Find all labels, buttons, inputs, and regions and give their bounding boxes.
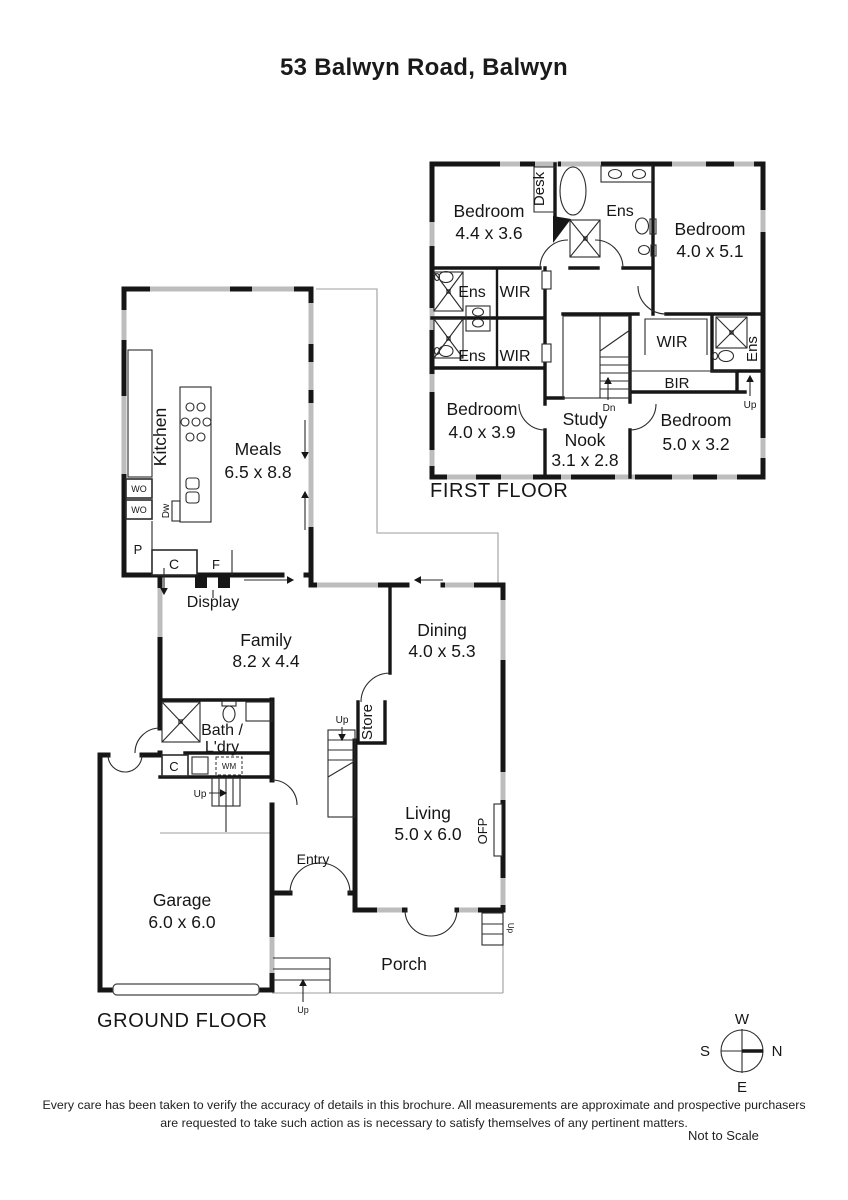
room-dims-bedroom-br: 5.0 x 3.2 [662,434,729,454]
dn-label: Dn [603,403,616,414]
room-label-living: Living [405,803,451,823]
room-dims-bedroom-tr: 4.0 x 5.1 [676,241,743,261]
room-label-dining: Dining [417,620,467,640]
room-label-bedroom-bl: Bedroom [446,399,517,419]
bir-label: BIR [664,375,689,392]
shower-icon [570,220,600,257]
north-label: N [772,1043,783,1060]
dishwasher-icon [172,501,180,521]
toilet-icon [713,351,734,362]
toilet-icon [222,701,236,722]
island-bench-icon [180,387,211,522]
first-floor-plan: Bedroom 4.4 x 3.6 Bedroom 4.0 x 5.1 Bedr… [430,164,763,502]
store-label: Store [359,704,376,740]
stairs-icon [563,316,630,398]
wir-label: WIR [499,348,530,365]
west-label: W [735,1011,750,1028]
disclaimer-line-1: Every care has been taken to verify the … [0,1096,848,1114]
room-label-family: Family [240,630,292,650]
room-dims-garage: 6.0 x 6.0 [148,912,215,932]
room-label-bedroom-tr: Bedroom [674,219,745,239]
door-panel [542,344,551,362]
east-label: E [737,1079,747,1096]
room-dims-meals: 6.5 x 8.8 [224,462,291,482]
angled-wall [553,216,571,243]
room-dims-bedroom-bl: 4.0 x 3.9 [448,422,515,442]
room-label-meals: Meals [235,439,282,459]
room-label-study-nook-2: Nook [565,430,606,450]
wir-label: WIR [499,284,530,301]
desk-label: Desk [531,171,548,206]
laundry-bench [246,702,272,721]
ens-label: Ens [458,348,486,365]
vanity-icon [601,166,652,182]
room-label-bath-2: L'dry [205,739,239,756]
washing-machine-label: WM [222,762,237,771]
stairs-icon [212,778,240,832]
up-label: Up [506,923,515,934]
fireplace-icon [494,804,502,856]
not-to-scale-note: Not to Scale [688,1128,798,1143]
first-floor-title: FIRST FLOOR [430,480,568,502]
shower-icon [716,317,747,348]
laundry-trough [192,757,208,774]
door-panel [542,271,551,289]
porch-outline [272,913,503,993]
ofp-label: OFP [475,818,490,845]
room-label-bath: Bath / [201,722,243,739]
slider-arrows [164,420,443,594]
room-label-kitchen: Kitchen [150,408,170,466]
bathtub-icon [560,167,586,215]
room-label-study-nook: Study [563,409,608,429]
shower-icon [162,702,200,742]
room-dims-dining: 4.0 x 5.3 [408,641,475,661]
ens-label: Ens [744,336,761,362]
room-dims-family: 8.2 x 4.4 [232,651,299,671]
up-label: Up [194,789,207,800]
wir-label: WIR [656,334,687,351]
room-label-bedroom-br: Bedroom [660,410,731,430]
room-label-bedroom-tl: Bedroom [453,201,524,221]
compass: W S N E [700,1011,782,1096]
pantry-label: P [134,542,143,557]
display-label: Display [187,594,239,611]
room-dims-bedroom-tl: 4.4 x 3.6 [455,223,522,243]
south-label: S [700,1043,710,1060]
wall-oven-label: WO [131,484,147,494]
porch-steps [273,958,330,993]
kitchen-bench [128,350,152,477]
floorplan-page: 53 Balwyn Road, Balwyn [0,0,848,1200]
ens-label: Ens [458,284,486,301]
porch-label: Porch [381,954,427,974]
cupboard-label: C [169,556,179,572]
closet-label: C [169,759,178,774]
wall-oven-label: WO [131,505,147,515]
up-label: Up [297,1005,309,1015]
ens-label: Ens [606,203,634,220]
up-label: Up [336,715,349,726]
entry-label: Entry [297,851,330,867]
garage-door-panel [113,984,259,995]
stairs-icon [328,730,355,817]
floorplan-drawing: Bedroom 4.4 x 3.6 Bedroom 4.0 x 5.1 Bedr… [0,0,848,1200]
room-label-garage: Garage [153,890,211,910]
room-dims-living: 5.0 x 6.0 [394,824,461,844]
dishwasher-label: Dw [161,503,172,518]
ground-floor-title: GROUND FLOOR [97,1010,268,1032]
fridge-label: F [212,557,220,572]
up-label: Up [744,400,757,411]
room-dims-study-nook: 3.1 x 2.8 [551,450,618,470]
disclaimer: Every care has been taken to verify the … [0,1096,848,1132]
toilet-icon [435,346,454,357]
side-steps [482,913,503,945]
